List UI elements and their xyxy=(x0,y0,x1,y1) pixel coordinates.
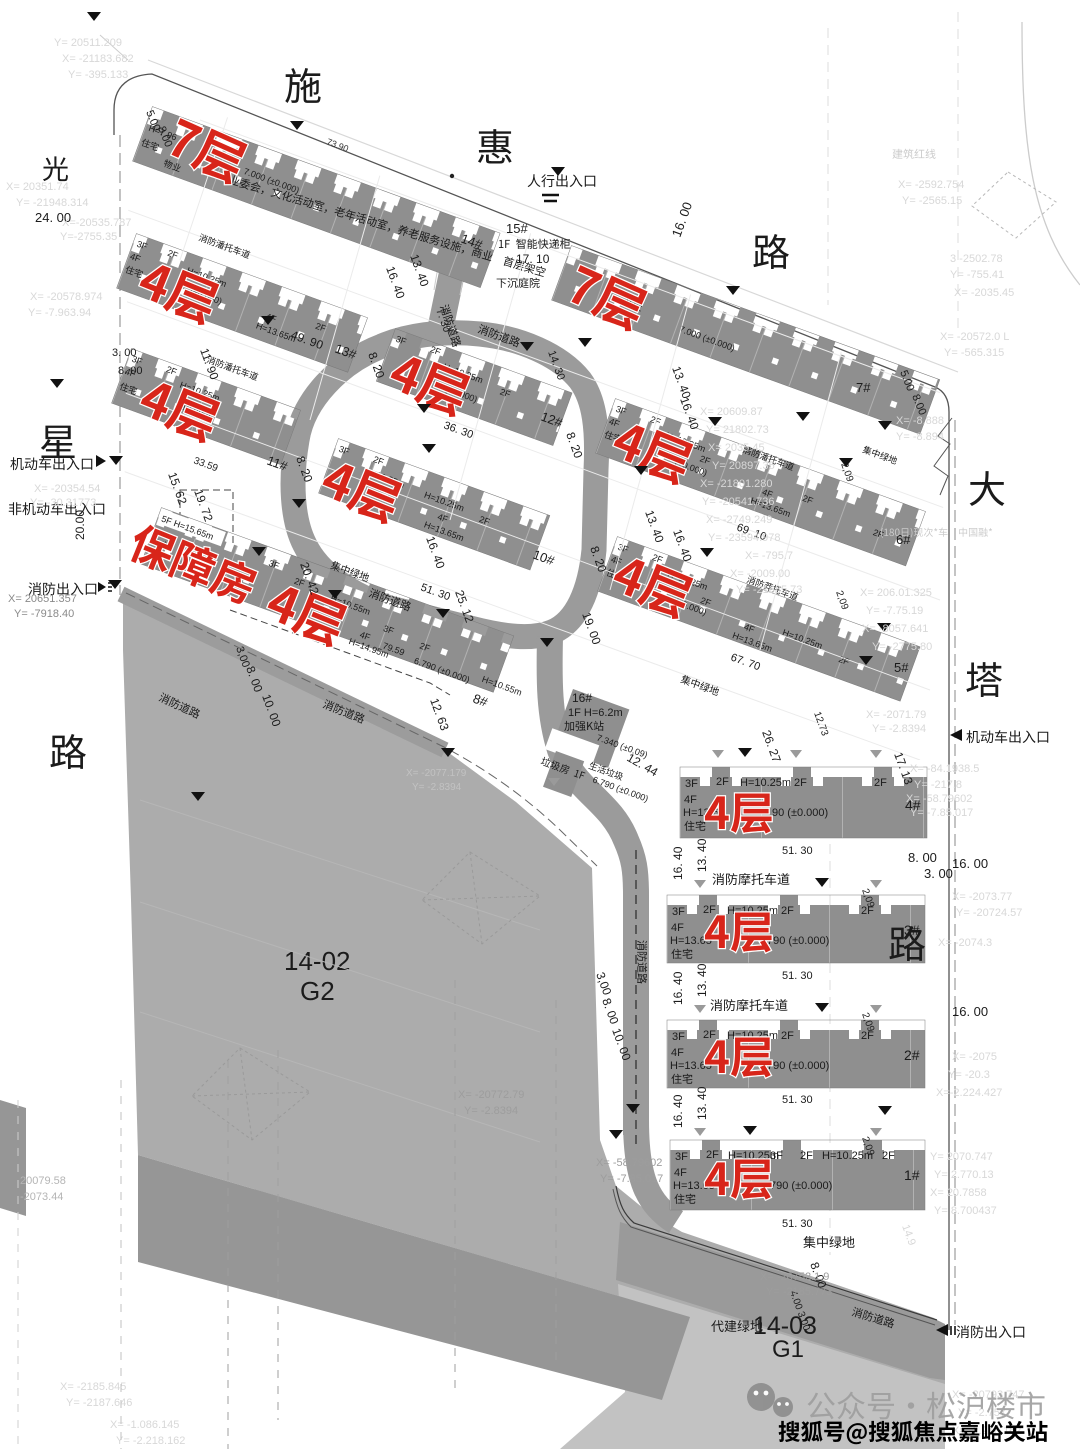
svg-text:X= 206.01.325: X= 206.01.325 xyxy=(860,587,932,599)
svg-text:X= -20572.0 L: X= -20572.0 L xyxy=(940,331,1009,343)
svg-text:Y= -2.218.162: Y= -2.218.162 xyxy=(116,1435,185,1447)
svg-text:Y= 8.700437: Y= 8.700437 xyxy=(934,1205,997,1217)
svg-text:13. 40: 13. 40 xyxy=(695,838,709,872)
svg-text:7#: 7# xyxy=(856,380,871,395)
svg-text:2#: 2# xyxy=(904,1047,920,1063)
svg-text:X= 20609.87: X= 20609.87 xyxy=(700,406,763,418)
svg-text:X= 20351.74: X= 20351.74 xyxy=(6,181,69,193)
svg-text:14-02: 14-02 xyxy=(284,946,351,976)
svg-text:X= -2075: X= -2075 xyxy=(952,1051,997,1063)
svg-text:4F: 4F xyxy=(671,922,684,934)
svg-text:X= -84.1938.5: X= -84.1938.5 xyxy=(910,763,979,775)
svg-text:17. 10: 17. 10 xyxy=(516,252,550,266)
svg-text:3. 00: 3. 00 xyxy=(924,866,953,881)
svg-text:790 (±0.000): 790 (±0.000) xyxy=(770,1180,832,1192)
svg-text:51. 30: 51. 30 xyxy=(782,1218,813,1230)
svg-text:1F H=6.2m: 1F H=6.2m xyxy=(568,707,623,719)
svg-text:X= 20.7858: X= 20.7858 xyxy=(930,1187,987,1199)
svg-text:16. 40: 16. 40 xyxy=(671,1094,685,1128)
svg-text:Y= -21685.73: Y= -21685.73 xyxy=(736,584,802,596)
svg-text:Y= -21948.314: Y= -21948.314 xyxy=(16,197,88,209)
svg-text:15#: 15# xyxy=(506,221,528,236)
svg-text:X= -2009.00: X= -2009.00 xyxy=(730,568,790,580)
svg-text:16. 40: 16. 40 xyxy=(671,846,685,880)
svg-text:Y= 20897.35: Y= 20897.35 xyxy=(712,460,775,472)
svg-text:2F: 2F xyxy=(706,1149,719,1161)
svg-text:Y= -7.75.19: Y= -7.75.19 xyxy=(866,605,923,617)
svg-text:3F: 3F xyxy=(685,778,698,790)
svg-text:3. 00: 3. 00 xyxy=(112,347,136,359)
svg-text:X= -8.888: X= -8.888 xyxy=(896,415,944,427)
svg-text:Y= -217.8: Y= -217.8 xyxy=(914,779,962,791)
svg-text:20079.58: 20079.58 xyxy=(20,1175,66,1187)
svg-text:Y= -2185.773: Y= -2185.773 xyxy=(766,1286,832,1298)
svg-text:2F: 2F xyxy=(716,776,729,788)
svg-text:Y= -2187.646: Y= -2187.646 xyxy=(66,1397,132,1409)
svg-text:Y= 20511.209: Y= 20511.209 xyxy=(54,37,122,49)
svg-text:X= -21183.682: X= -21183.682 xyxy=(62,53,134,65)
svg-text:Y= -2565.15: Y= -2565.15 xyxy=(902,195,962,207)
svg-text:13. 40: 13. 40 xyxy=(695,1086,709,1120)
svg-text:Y= 2.770.13: Y= 2.770.13 xyxy=(934,1169,994,1181)
svg-text:16. 40: 16. 40 xyxy=(671,971,685,1005)
svg-text:1#: 1# xyxy=(904,1167,920,1183)
svg-text:X= -20772.79: X= -20772.79 xyxy=(458,1089,524,1101)
svg-text:Y= -7.963.94: Y= -7.963.94 xyxy=(28,307,91,319)
svg-text:3F: 3F xyxy=(675,1151,688,1163)
svg-text:16. 00: 16. 00 xyxy=(952,1004,988,1019)
svg-text:2F: 2F xyxy=(703,1029,716,1041)
svg-text:4F: 4F xyxy=(674,1167,687,1179)
svg-text:X= -2185.845: X= -2185.845 xyxy=(60,1381,126,1393)
svg-text:2F: 2F xyxy=(874,777,887,789)
svg-text:X= -2592.754: X= -2592.754 xyxy=(898,179,964,191)
svg-text:16. 00: 16. 00 xyxy=(952,856,988,871)
svg-text:3#: 3# xyxy=(904,922,920,938)
svg-text:X= -20752.1.9: X= -20752.1.9 xyxy=(760,1271,829,1283)
svg-text:6#: 6# xyxy=(896,532,911,547)
svg-text:Y= -2.8394: Y= -2.8394 xyxy=(872,723,926,735)
svg-text:Y= -565.315: Y= -565.315 xyxy=(944,347,1004,359)
svg-text:Y= -20541.736: Y= -20541.736 xyxy=(702,496,774,508)
svg-text:X= -20354.54: X= -20354.54 xyxy=(34,483,100,495)
svg-text:X= -795.7: X= -795.7 xyxy=(745,550,793,562)
svg-text:790 (±0.000): 790 (±0.000) xyxy=(767,1060,829,1072)
svg-text:8. 00: 8. 00 xyxy=(118,365,142,377)
svg-text:-2073.44: -2073.44 xyxy=(20,1191,63,1203)
svg-text:4F: 4F xyxy=(684,794,697,806)
svg-text:Y= -395.133: Y= -395.133 xyxy=(68,69,128,81)
svg-text:3 -2502.78: 3 -2502.78 xyxy=(950,253,1003,265)
svg-text:X= -20578.974: X= -20578.974 xyxy=(30,291,102,303)
svg-text:3F: 3F xyxy=(672,1031,685,1043)
svg-text:51. 30: 51. 30 xyxy=(782,970,813,982)
svg-text:Y= -2.8394: Y= -2.8394 xyxy=(464,1105,518,1117)
svg-text:X= -21801.280: X= -21801.280 xyxy=(700,478,772,490)
svg-text:5#: 5# xyxy=(894,660,909,675)
svg-text:790 (±0.000): 790 (±0.000) xyxy=(767,935,829,947)
svg-text:13. 40: 13. 40 xyxy=(695,963,709,997)
svg-text:2F: 2F xyxy=(800,1150,813,1162)
svg-text:X= -8057.641: X= -8057.641 xyxy=(862,623,928,635)
svg-text:20.00: 20.00 xyxy=(73,510,87,540)
svg-text:G1: G1 xyxy=(772,1336,804,1363)
svg-text:Y= -2775.80: Y= -2775.80 xyxy=(872,641,932,653)
svg-text:51. 30: 51. 30 xyxy=(782,1094,813,1106)
svg-text:4F: 4F xyxy=(671,1047,684,1059)
svg-text:X= -2073.77: X= -2073.77 xyxy=(952,891,1012,903)
svg-text:Y= -755.41: Y= -755.41 xyxy=(950,269,1004,281)
svg-text:X= -2077.179: X= -2077.179 xyxy=(406,768,467,779)
svg-text:2F: 2F xyxy=(781,905,794,917)
svg-text:G2: G2 xyxy=(300,976,335,1006)
svg-text:Y= -7.85.017: Y= -7.85.017 xyxy=(910,807,973,819)
svg-text:2F: 2F xyxy=(882,1150,895,1162)
svg-text:X= -58.79602: X= -58.79602 xyxy=(906,793,972,805)
svg-text:X= -2074.3: X= -2074.3 xyxy=(938,937,992,949)
svg-text:X= -2035.45: X= -2035.45 xyxy=(954,287,1014,299)
svg-text:X= -2071.79: X= -2071.79 xyxy=(866,709,926,721)
svg-text:Y=-2755.35: Y=-2755.35 xyxy=(60,231,117,243)
svg-text:3F: 3F xyxy=(672,906,685,918)
svg-text:90 (±0.000): 90 (±0.000) xyxy=(772,807,828,819)
svg-text:Y= 21802.73: Y= 21802.73 xyxy=(706,424,769,436)
svg-text:Y= -23594.978: Y= -23594.978 xyxy=(708,532,780,544)
svg-text:X= -2749.249: X= -2749.249 xyxy=(706,514,772,526)
svg-text:Y= -30.31773: Y= -30.31773 xyxy=(30,497,96,509)
svg-text:X= -58.79602: X= -58.79602 xyxy=(596,1157,662,1169)
svg-text:X= 2035.45: X= 2035.45 xyxy=(708,442,765,454)
svg-text:Y= -20724.57: Y= -20724.57 xyxy=(956,907,1022,919)
svg-text:X=-2.224.427: X=-2.224.427 xyxy=(936,1087,1002,1099)
svg-text:2F: 2F xyxy=(794,777,807,789)
svg-text:X=-20535.787: X=-20535.787 xyxy=(62,217,131,229)
svg-text:Y= -8.894: Y= -8.894 xyxy=(896,431,944,443)
svg-text:3F: 3F xyxy=(770,1150,783,1162)
svg-text:2F: 2F xyxy=(781,1030,794,1042)
svg-text:51. 30: 51. 30 xyxy=(782,845,813,857)
svg-text:X= -1.086.145: X= -1.086.145 xyxy=(110,1419,179,1431)
svg-text:Y= 2070.747: Y= 2070.747 xyxy=(930,1151,993,1163)
svg-text:8. 00: 8. 00 xyxy=(908,850,937,865)
svg-text:H=10.25m: H=10.25m xyxy=(740,777,791,789)
svg-text:Y= -7.85.017: Y= -7.85.017 xyxy=(600,1173,663,1185)
svg-text:Y= -2.8394: Y= -2.8394 xyxy=(412,782,462,793)
svg-text:Y= -20.3: Y= -20.3 xyxy=(948,1069,990,1081)
svg-text:X= 20651.357: X= 20651.357 xyxy=(8,593,77,605)
svg-text:2F: 2F xyxy=(703,904,716,916)
svg-text:16#: 16# xyxy=(572,691,592,705)
svg-text:Y= -7918.40: Y= -7918.40 xyxy=(14,608,74,620)
